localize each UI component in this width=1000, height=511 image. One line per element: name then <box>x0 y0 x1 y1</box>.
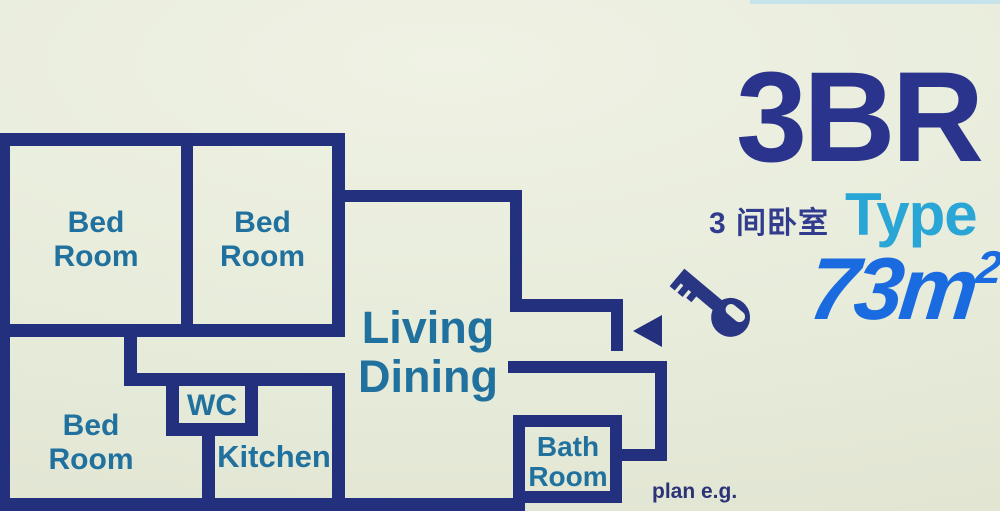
wall-entry-top <box>510 299 623 312</box>
wall-outer-top <box>0 133 345 146</box>
wall-corridor-top <box>508 361 667 373</box>
wall-outer-bottom <box>0 498 525 511</box>
plan-footnote: plan e.g. <box>652 480 737 504</box>
wall-kitchen-right <box>332 373 345 511</box>
wall-bathroom-top <box>513 415 622 427</box>
plan-type-heading: 3BR <box>728 54 988 182</box>
room-label-living-dining: Living Dining <box>348 303 508 401</box>
top-edge-artifact <box>750 0 1000 4</box>
wall-living-top <box>345 190 522 202</box>
entrance-arrow-icon <box>633 315 662 347</box>
wall-bedroom2-right <box>332 133 345 337</box>
wall-outer-right <box>655 361 667 461</box>
wall-bedrooms-bottom <box>0 324 345 337</box>
bedroom-count-chinese: 3 间卧室 <box>709 198 829 242</box>
room-label-bathroom: Bath Room <box>527 432 609 492</box>
floor-plan-infographic: Bed Room Bed Room Bed Room WC Kitchen Li… <box>0 0 1000 511</box>
area-value: 73m2 <box>805 245 1000 333</box>
wall-outer-right-bottom <box>620 449 667 461</box>
wall-bathroom-bottom <box>513 491 622 503</box>
room-label-kitchen: Kitchen <box>216 440 332 475</box>
wall-outer-left <box>0 133 10 511</box>
wall-bathroom-left <box>513 415 525 503</box>
wall-bedroom3-kitchen-div <box>202 429 215 511</box>
room-label-wc: WC <box>178 389 246 423</box>
room-label-bedroom-3: Bed Room <box>12 409 170 476</box>
wall-entry-left <box>510 190 522 312</box>
room-label-bedroom-1: Bed Room <box>10 206 182 273</box>
wall-wc-kitchen-top <box>124 373 345 386</box>
area-number: 73m <box>805 239 980 338</box>
key-icon <box>663 257 761 350</box>
wall-bedroom-divider <box>181 133 193 337</box>
wall-bathroom-right <box>610 415 622 503</box>
room-label-bedroom-2: Bed Room <box>193 206 332 273</box>
area-superscript: 2 <box>974 241 1000 293</box>
wall-entry-right-stub <box>611 299 623 351</box>
